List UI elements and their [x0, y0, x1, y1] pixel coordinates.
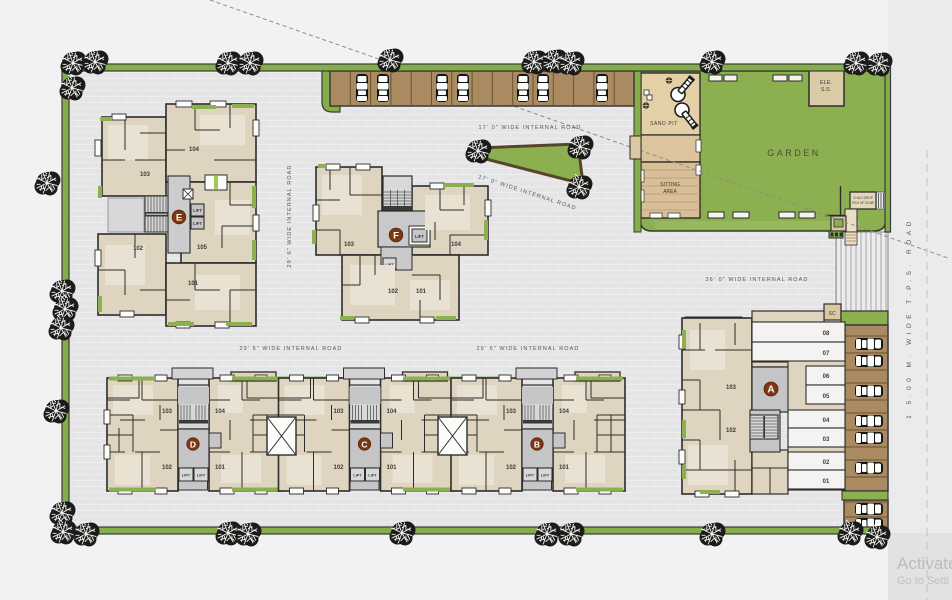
svg-text:LIFT: LIFT — [526, 473, 535, 478]
svg-text:LIFT: LIFT — [415, 234, 424, 239]
svg-text:LIFT: LIFT — [368, 473, 377, 478]
svg-text:103: 103 — [506, 409, 517, 415]
svg-text:LIFT: LIFT — [541, 473, 550, 478]
svg-text:103: 103 — [726, 385, 737, 391]
svg-text:Go to Setti: Go to Setti — [897, 575, 949, 587]
svg-text:104: 104 — [559, 409, 570, 415]
svg-text:17' 0" WIDE INTERNAL ROAD: 17' 0" WIDE INTERNAL ROAD — [478, 125, 581, 131]
svg-text:SITTING: SITTING — [660, 182, 680, 188]
svg-text:06: 06 — [823, 374, 830, 380]
svg-text:103: 103 — [333, 409, 344, 415]
svg-text:04: 04 — [823, 418, 830, 424]
svg-text:LIFT: LIFT — [193, 221, 202, 226]
svg-text:Activate: Activate — [897, 554, 952, 573]
svg-text:29' 6" WIDE INTERNAL ROAD: 29' 6" WIDE INTERNAL ROAD — [239, 346, 342, 352]
svg-text:104: 104 — [386, 409, 397, 415]
svg-text:05: 05 — [823, 394, 830, 400]
svg-text:B: B — [534, 439, 540, 449]
svg-text:102: 102 — [162, 465, 173, 471]
svg-text:C: C — [361, 439, 367, 449]
svg-text:AREA: AREA — [663, 189, 677, 195]
svg-text:ELE.: ELE. — [820, 80, 832, 86]
svg-text:01: 01 — [823, 479, 830, 485]
svg-text:29' 6" WIDE INTERNAL ROAD: 29' 6" WIDE INTERNAL ROAD — [287, 164, 293, 267]
svg-text:101: 101 — [559, 465, 570, 471]
svg-text:E: E — [176, 213, 182, 224]
svg-text:102: 102 — [133, 246, 144, 252]
svg-text:PICK UP ZONE: PICK UP ZONE — [852, 201, 874, 205]
svg-text:104: 104 — [215, 409, 226, 415]
svg-text:105: 105 — [197, 245, 208, 251]
svg-text:102: 102 — [388, 289, 399, 295]
svg-text:1 5.00 M. WIDE T.P.S. ROAD: 1 5.00 M. WIDE T.P.S. ROAD — [906, 217, 913, 419]
svg-text:LIFT: LIFT — [193, 208, 202, 213]
svg-text:102: 102 — [333, 465, 344, 471]
svg-text:CHILD DROP: CHILD DROP — [853, 196, 873, 200]
svg-text:SAND PIT: SAND PIT — [650, 121, 678, 127]
svg-text:103: 103 — [140, 172, 151, 178]
svg-text:29' 6" WIDE INTERNAL ROAD: 29' 6" WIDE INTERNAL ROAD — [476, 346, 579, 352]
svg-text:102: 102 — [726, 428, 737, 434]
svg-text:36' 0" WIDE INTERNAL ROAD: 36' 0" WIDE INTERNAL ROAD — [705, 277, 808, 283]
svg-text:07: 07 — [823, 351, 830, 357]
svg-text:SC: SC — [829, 311, 836, 317]
svg-text:LIFT: LIFT — [197, 473, 206, 478]
svg-text:101: 101 — [386, 465, 397, 471]
svg-text:D: D — [190, 439, 196, 449]
svg-text:02: 02 — [823, 460, 830, 466]
svg-text:LIFT: LIFT — [182, 473, 191, 478]
svg-text:104: 104 — [451, 242, 462, 248]
svg-text:F: F — [393, 231, 399, 242]
svg-text:101: 101 — [188, 281, 199, 287]
svg-text:101: 101 — [215, 465, 226, 471]
svg-text:03: 03 — [823, 437, 830, 443]
svg-text:104: 104 — [189, 147, 200, 153]
svg-text:A: A — [767, 385, 774, 396]
svg-text:103: 103 — [162, 409, 173, 415]
svg-text:08: 08 — [823, 331, 830, 337]
svg-text:103: 103 — [344, 242, 355, 248]
svg-text:S.S.: S.S. — [821, 87, 832, 93]
svg-text:101: 101 — [416, 289, 427, 295]
svg-text:102: 102 — [506, 465, 517, 471]
svg-text:LIFT: LIFT — [353, 473, 362, 478]
svg-text:GARDEN: GARDEN — [767, 148, 821, 158]
